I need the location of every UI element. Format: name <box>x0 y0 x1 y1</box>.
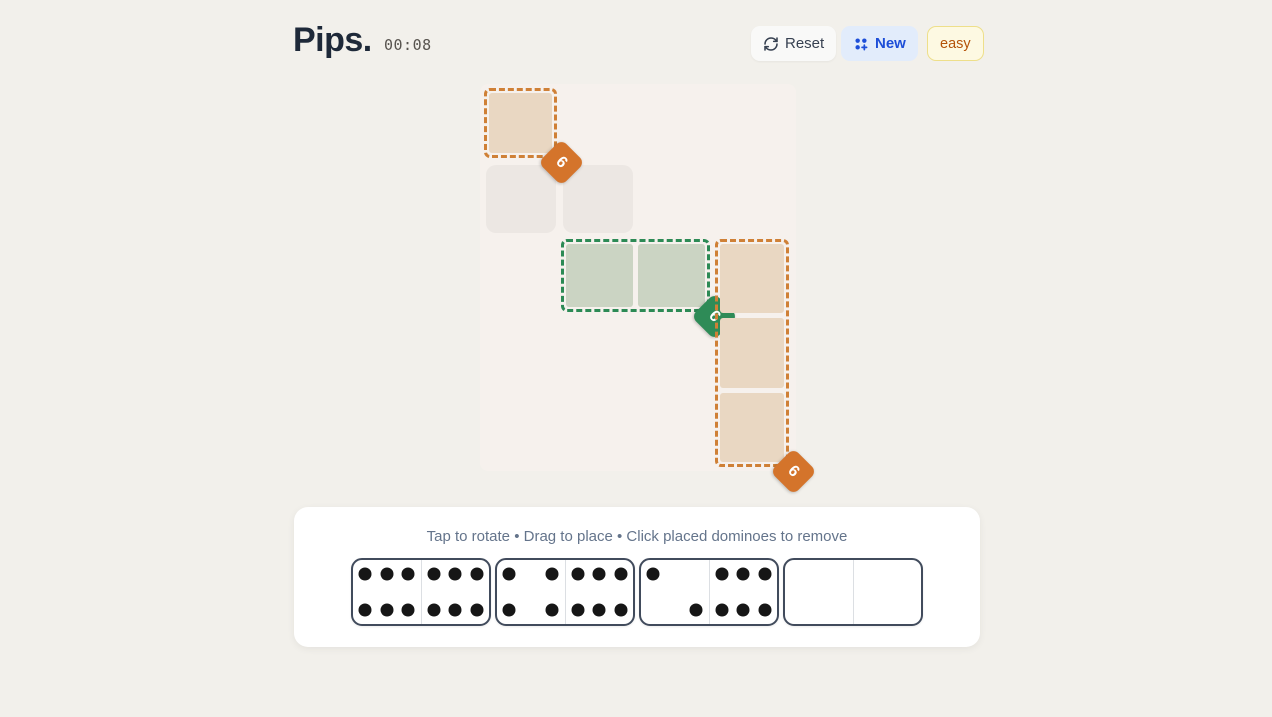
pip <box>715 568 728 581</box>
pip <box>546 568 559 581</box>
tray-instructions: Tap to rotate • Drag to place • Click pl… <box>294 528 980 545</box>
domino-2-6[interactable] <box>639 558 779 626</box>
pip <box>571 603 584 616</box>
reset-button[interactable]: Reset <box>751 26 836 61</box>
domino-6-6[interactable] <box>351 558 491 626</box>
pip <box>503 568 516 581</box>
pip <box>571 568 584 581</box>
domino-tray: Tap to rotate • Drag to place • Click pl… <box>294 507 980 647</box>
board-cell-free-1[interactable] <box>563 165 633 233</box>
pip <box>737 568 750 581</box>
domino-4-6[interactable] <box>495 558 635 626</box>
orange-region-right-column-cell-0[interactable] <box>720 244 784 313</box>
orange-region-top-left <box>484 88 557 158</box>
new-button[interactable]: New <box>841 26 918 61</box>
pip <box>758 568 771 581</box>
domino-4-6-half-4 <box>497 560 566 624</box>
new-puzzle-icon <box>853 36 869 52</box>
pip <box>427 603 440 616</box>
pip <box>715 603 728 616</box>
green-region-middle-cell-0[interactable] <box>566 244 633 307</box>
new-button-label: New <box>875 35 906 52</box>
domino-2-6-half-6 <box>710 560 778 624</box>
pip <box>359 603 372 616</box>
orange-region-right-column-cell-1[interactable] <box>720 318 784 387</box>
domino-0-0-half-0 <box>854 560 922 624</box>
pip <box>546 603 559 616</box>
domino-6-6-half-6 <box>353 560 422 624</box>
board-cell-free-0[interactable] <box>486 165 556 233</box>
timer: 00:08 <box>384 36 432 54</box>
pip <box>593 568 606 581</box>
pip <box>449 568 462 581</box>
pip <box>593 603 606 616</box>
pip <box>380 603 393 616</box>
pip <box>359 568 372 581</box>
pip <box>427 568 440 581</box>
domino-6-6-half-6 <box>422 560 490 624</box>
domino-row <box>294 558 980 626</box>
pip <box>402 603 415 616</box>
domino-2-6-half-2 <box>641 560 710 624</box>
pip <box>449 603 462 616</box>
pip <box>758 603 771 616</box>
green-region-middle-cell-1[interactable] <box>638 244 705 307</box>
domino-0-0[interactable] <box>783 558 923 626</box>
refresh-icon <box>763 36 779 52</box>
pip <box>503 603 516 616</box>
pip <box>614 603 627 616</box>
difficulty-label: easy <box>940 36 971 52</box>
orange-region-top-left-cell-0[interactable] <box>489 93 552 153</box>
difficulty-badge[interactable]: easy <box>927 26 984 61</box>
pip <box>647 568 660 581</box>
domino-4-6-half-6 <box>566 560 634 624</box>
pip <box>380 568 393 581</box>
green-region-middle <box>561 239 710 312</box>
reset-button-label: Reset <box>785 35 824 52</box>
board: 666 <box>480 84 796 471</box>
pip <box>737 603 750 616</box>
pip <box>614 568 627 581</box>
orange-region-right-column-cell-2[interactable] <box>720 393 784 462</box>
app-title: Pips. <box>293 21 372 60</box>
pip <box>470 603 483 616</box>
pip <box>402 568 415 581</box>
pip <box>690 603 703 616</box>
domino-0-0-half-0 <box>785 560 854 624</box>
orange-region-right-column <box>715 239 789 467</box>
pip <box>470 568 483 581</box>
